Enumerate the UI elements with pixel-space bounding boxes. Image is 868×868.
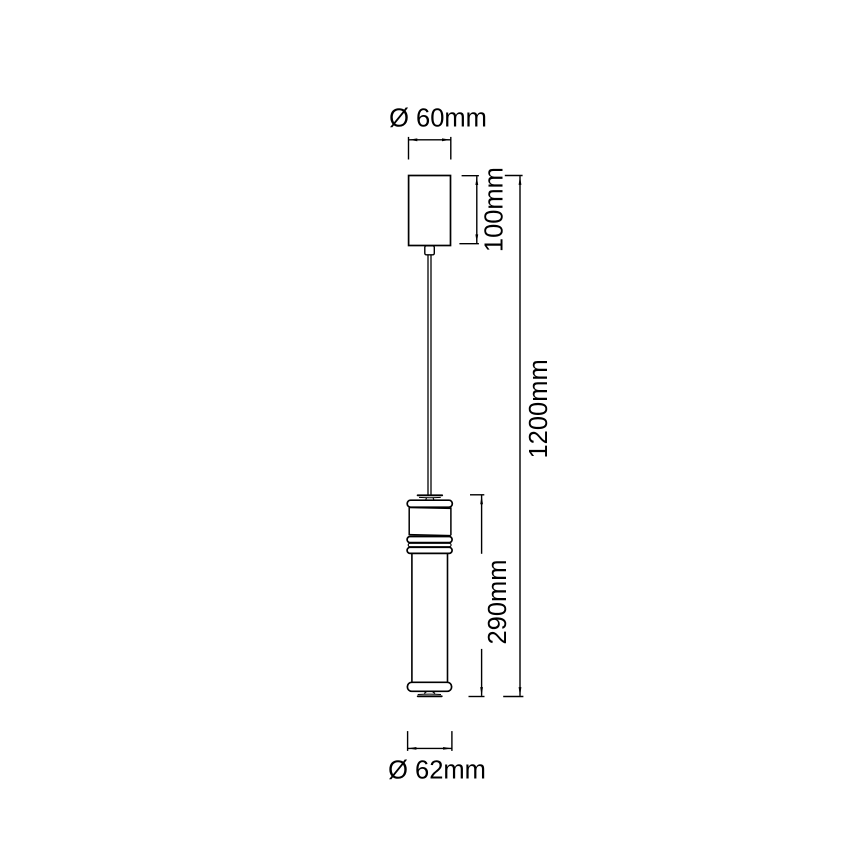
svg-text:1200mm: 1200mm [525,359,553,458]
svg-text:290mm: 290mm [484,559,512,644]
svg-text:Ø 62mm: Ø 62mm [388,757,486,785]
svg-text:Ø 60mm: Ø 60mm [389,105,487,133]
svg-text:100mm: 100mm [480,167,508,252]
